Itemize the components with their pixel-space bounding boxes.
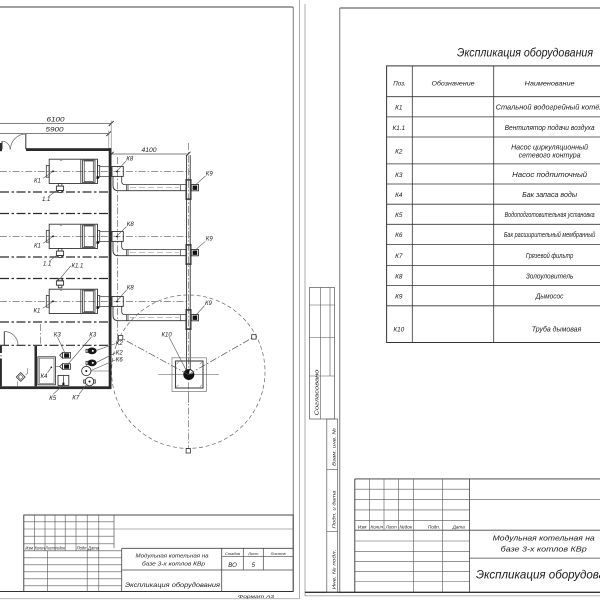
svg-text:1.1: 1.1 <box>42 197 50 203</box>
svg-text:К9: К9 <box>206 237 214 243</box>
svg-text:Грязевой фильтр: Грязевой фильтр <box>526 252 574 260</box>
svg-text:Экспликация оборудования: Экспликация оборудования <box>476 568 600 582</box>
svg-text:Модульная котельная на: Модульная котельная на <box>136 554 209 560</box>
svg-text:Бак запаса воды: Бак запаса воды <box>522 191 578 199</box>
svg-text:6100: 6100 <box>47 116 66 123</box>
svg-text:Золоуловитель: Золоуловитель <box>526 273 574 280</box>
svg-text:Дата: Дата <box>87 546 100 551</box>
svg-text:Дымосос: Дымосос <box>535 294 564 301</box>
svg-text:К9: К9 <box>395 294 403 301</box>
svg-text:Взам. инв. №: Взам. инв. № <box>332 428 337 466</box>
svg-text:№док: №док <box>400 524 413 529</box>
svg-text:К2: К2 <box>116 341 124 347</box>
svg-text:Лист: Лист <box>385 524 397 529</box>
svg-text:К5: К5 <box>395 212 403 219</box>
svg-text:базе 3-х котлов КВр: базе 3-х котлов КВр <box>142 562 205 568</box>
svg-text:Лист: Лист <box>247 551 259 556</box>
svg-text:К1: К1 <box>395 105 403 112</box>
svg-text:Подп. и дата: Подп. и дата <box>332 490 337 529</box>
svg-text:Листов: Листов <box>270 551 286 556</box>
svg-text:Труба дымовая: Труба дымовая <box>532 325 582 333</box>
svg-text:К8: К8 <box>126 156 134 162</box>
svg-text:№док: №док <box>55 546 65 551</box>
svg-text:Насос подпиточный: Насос подпиточный <box>512 171 587 179</box>
svg-text:К5: К5 <box>49 396 57 402</box>
svg-text:Поз.: Поз. <box>393 81 405 88</box>
svg-text:Согласовано: Согласовано <box>315 369 321 415</box>
svg-text:К10: К10 <box>393 326 404 333</box>
svg-text:Экспликация оборудования: Экспликация оборудования <box>457 46 594 60</box>
svg-text:К1: К1 <box>34 178 41 184</box>
svg-text:5900: 5900 <box>46 127 65 134</box>
svg-text:Стадия: Стадия <box>225 551 241 556</box>
svg-text:К9: К9 <box>205 301 213 307</box>
svg-text:К4: К4 <box>41 374 49 380</box>
svg-text:Насос циркуляционный: Насос циркуляционный <box>511 143 588 151</box>
svg-text:К10: К10 <box>162 332 173 338</box>
svg-text:К2: К2 <box>395 148 403 155</box>
svg-text:Подп.: Подп. <box>428 524 440 529</box>
svg-text:Изм: Изм <box>358 524 367 529</box>
svg-text:К1.1: К1.1 <box>392 125 405 132</box>
svg-text:К1: К1 <box>34 308 41 314</box>
svg-text:К9: К9 <box>206 171 214 177</box>
svg-text:Наименование: Наименование <box>525 81 576 88</box>
svg-text:К1: К1 <box>34 243 41 249</box>
svg-text:Бак расширительный мембранный: Бак расширительный мембранный <box>504 231 596 239</box>
svg-text:ВО: ВО <box>228 563 237 569</box>
svg-text:К6: К6 <box>395 232 403 239</box>
svg-text:Изм: Изм <box>25 546 33 551</box>
svg-text:К7: К7 <box>72 395 80 401</box>
svg-text:Формат А3: Формат А3 <box>238 594 275 599</box>
svg-text:Стальной водогрейный котёл: Стальной водогрейный котёл <box>496 104 600 112</box>
svg-text:Лист: Лист <box>45 546 55 551</box>
svg-text:Водоподготовительная установка: Водоподготовительная установка <box>505 211 595 219</box>
svg-text:К8: К8 <box>127 285 135 291</box>
svg-text:К2: К2 <box>116 351 124 357</box>
svg-text:К7: К7 <box>395 253 403 260</box>
svg-text:4100: 4100 <box>142 147 158 154</box>
svg-text:К8: К8 <box>127 222 135 228</box>
svg-text:1.1: 1.1 <box>43 261 51 267</box>
svg-text:Экспликация оборудования: Экспликация оборудования <box>125 581 221 589</box>
svg-text:Подп: Подп <box>77 546 88 551</box>
svg-text:Колич: Колич <box>35 546 46 551</box>
svg-text:К4: К4 <box>395 192 403 199</box>
svg-text:базе 3-х котлов КВр: базе 3-х котлов КВр <box>501 545 587 554</box>
svg-text:Вентилятор подачи воздуха: Вентилятор подачи воздуха <box>505 124 595 132</box>
svg-text:Дата: Дата <box>452 524 466 529</box>
svg-text:К3: К3 <box>89 332 97 338</box>
svg-text:Обозначение: Обозначение <box>432 81 476 88</box>
svg-text:К3: К3 <box>395 172 403 179</box>
svg-text:К1.1: К1.1 <box>72 263 84 269</box>
svg-text:Инв. № подл.: Инв. № подл. <box>332 550 337 590</box>
svg-text:К8: К8 <box>395 273 403 280</box>
svg-text:Модульная котельная на: Модульная котельная на <box>493 534 595 543</box>
svg-text:сетевого контура: сетевого контура <box>519 152 581 159</box>
svg-text:К6: К6 <box>116 358 124 364</box>
svg-text:Колич: Колич <box>371 524 384 529</box>
